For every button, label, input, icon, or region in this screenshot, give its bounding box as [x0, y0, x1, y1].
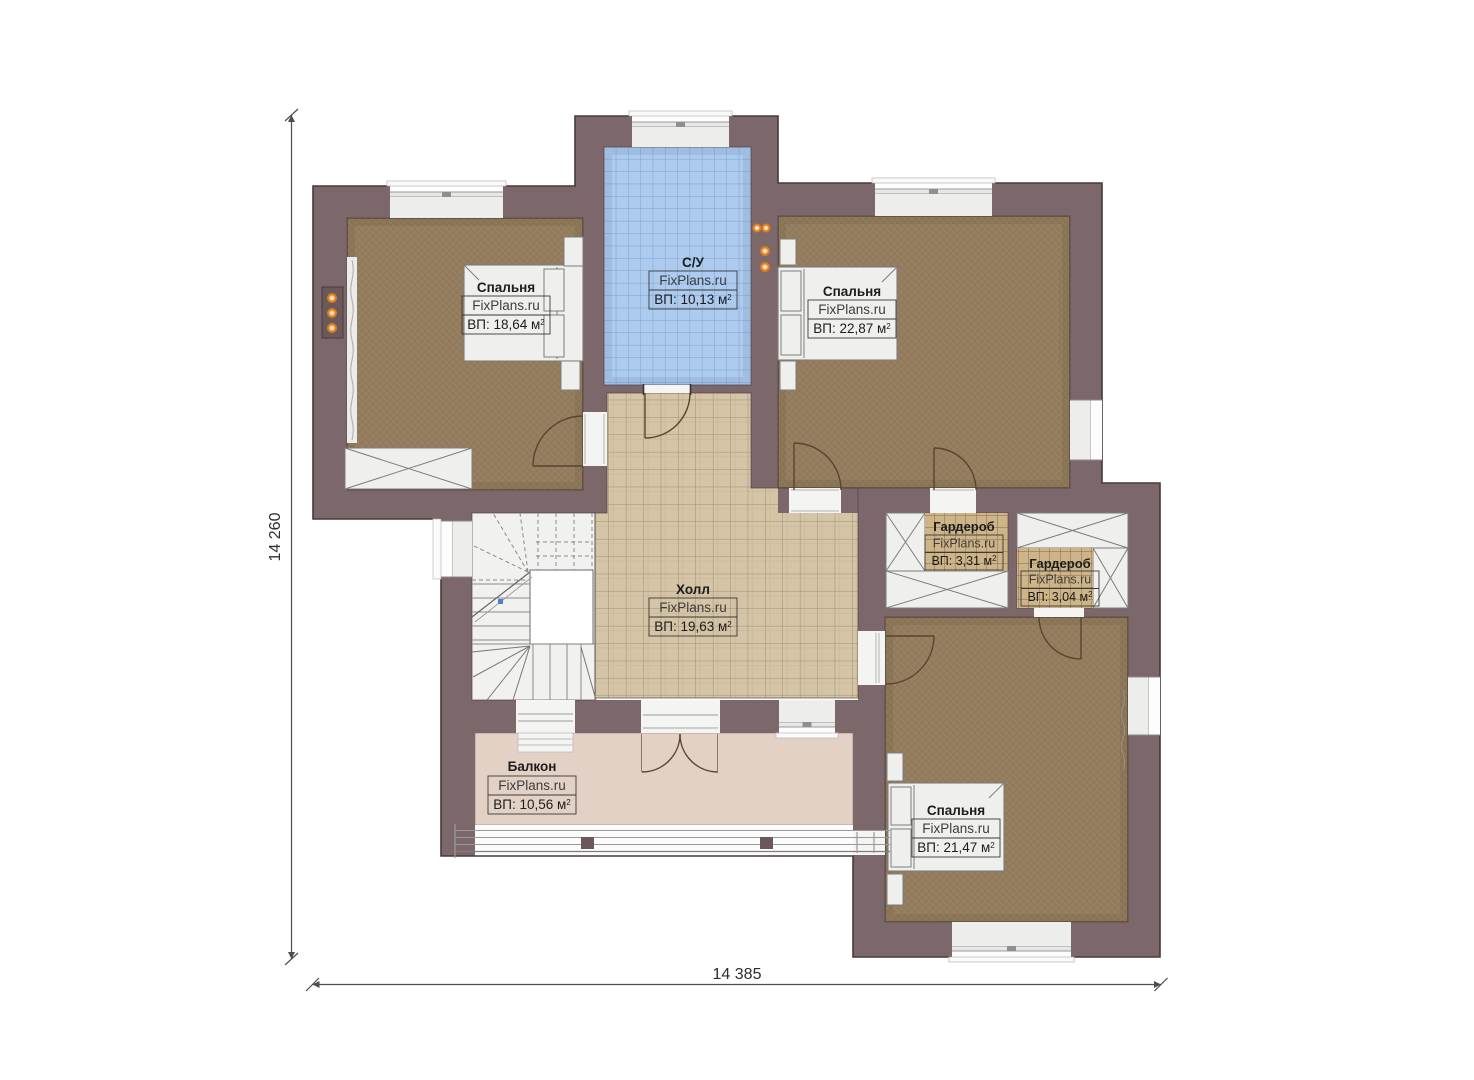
svg-text:Спальня: Спальня: [927, 803, 985, 818]
svg-text:ВП: 10,56 м2: ВП: 10,56 м2: [493, 797, 571, 812]
svg-text:С/У: С/У: [682, 255, 705, 270]
svg-text:ВП: 3,04 м2: ВП: 3,04 м2: [1027, 590, 1093, 604]
svg-text:Холл: Холл: [676, 582, 710, 597]
svg-text:Гардероб: Гардероб: [933, 519, 994, 534]
svg-text:14 260: 14 260: [267, 512, 284, 561]
svg-text:FixPlans.ru: FixPlans.ru: [933, 537, 996, 551]
svg-text:FixPlans.ru: FixPlans.ru: [818, 302, 886, 317]
svg-text:ВП: 21,47 м2: ВП: 21,47 м2: [917, 840, 995, 855]
svg-text:FixPlans.ru: FixPlans.ru: [659, 273, 727, 288]
svg-text:FixPlans.ru: FixPlans.ru: [659, 600, 727, 615]
svg-text:FixPlans.ru: FixPlans.ru: [498, 778, 566, 793]
svg-text:Гардероб: Гардероб: [1029, 556, 1090, 571]
svg-text:FixPlans.ru: FixPlans.ru: [1029, 573, 1092, 587]
svg-text:Балкон: Балкон: [508, 759, 557, 774]
svg-text:ВП: 10,13 м2: ВП: 10,13 м2: [654, 292, 732, 307]
svg-text:FixPlans.ru: FixPlans.ru: [472, 298, 540, 313]
svg-text:ВП: 22,87 м2: ВП: 22,87 м2: [813, 321, 891, 336]
svg-text:Спальня: Спальня: [823, 284, 881, 299]
svg-text:ВП: 3,31 м2: ВП: 3,31 м2: [931, 554, 997, 568]
svg-text:ВП: 18,64 м2: ВП: 18,64 м2: [467, 317, 545, 332]
svg-text:14 385: 14 385: [713, 966, 762, 983]
svg-text:ВП: 19,63 м2: ВП: 19,63 м2: [654, 619, 732, 634]
svg-text:Спальня: Спальня: [477, 280, 535, 295]
svg-text:FixPlans.ru: FixPlans.ru: [922, 821, 990, 836]
